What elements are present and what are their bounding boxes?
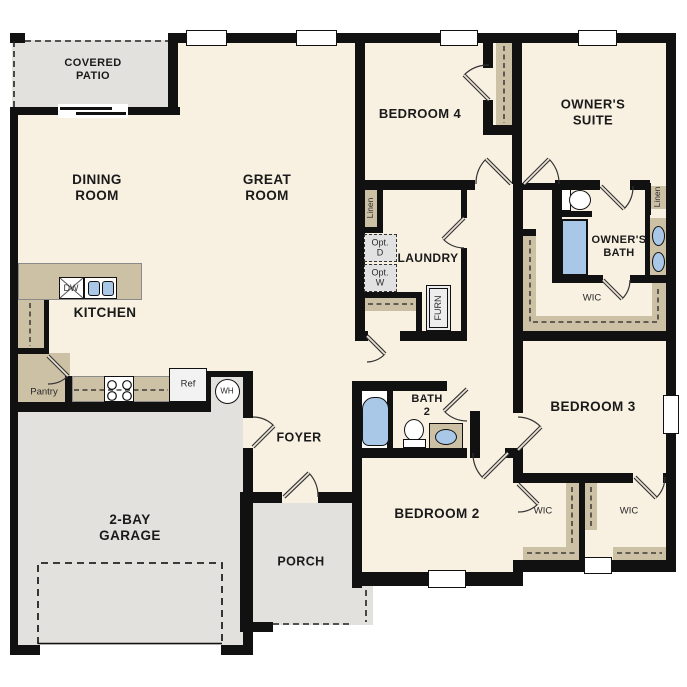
owners-wic-shelf-right — [652, 283, 666, 316]
wall — [10, 645, 40, 655]
room-label-garage: 2-BAY GARAGE — [99, 512, 161, 544]
wic3-shelf-bottom — [613, 547, 666, 560]
window — [428, 570, 466, 588]
wall — [483, 43, 493, 68]
label-line: SUITE — [561, 112, 625, 128]
room-label-laundry: LAUNDRY — [397, 251, 458, 265]
wall — [663, 473, 676, 483]
window — [663, 395, 679, 434]
window — [440, 30, 478, 46]
wic2-shelf-bottom — [523, 547, 579, 560]
wall — [10, 107, 18, 655]
wall — [243, 371, 253, 418]
vanity-sink — [652, 226, 665, 246]
wall — [513, 331, 676, 341]
appliance-label-opt-washer: Opt. W — [371, 268, 388, 289]
room-label-kitchen: KITCHEN — [74, 305, 137, 321]
wall — [513, 183, 557, 190]
wall — [205, 371, 247, 377]
wall — [461, 190, 467, 218]
wall — [168, 41, 178, 111]
appliance-label-furn: FURN — [433, 296, 443, 321]
wall — [44, 300, 49, 354]
wall — [558, 211, 592, 217]
wall — [400, 331, 422, 341]
wall — [355, 331, 368, 341]
room-label-covered-patio: COVERED PATIO — [64, 57, 121, 83]
label-line: DINING — [72, 172, 122, 188]
label-line: OWNER'S — [561, 96, 625, 112]
wall — [355, 292, 422, 298]
label-line: BATH — [592, 247, 647, 260]
wall — [579, 483, 585, 560]
wall — [523, 229, 536, 236]
wall — [630, 275, 668, 283]
label-line: W — [371, 278, 388, 288]
room-label-great: GREAT ROOM — [243, 172, 291, 204]
wall — [377, 185, 383, 233]
wall — [505, 448, 523, 458]
closet-label-wic-owner: WIC — [583, 294, 601, 305]
owners-toilet-bowl — [569, 190, 591, 210]
owners-wic-shelf-bottom — [536, 316, 666, 331]
room-label-porch: PORCH — [277, 555, 324, 570]
owners-shower — [561, 219, 588, 276]
wall — [355, 180, 475, 190]
wall — [240, 492, 250, 632]
appliance-label-opt-dryer: Opt. D — [371, 238, 388, 259]
room-label-bedroom2: BEDROOM 2 — [394, 506, 479, 522]
wall — [318, 492, 360, 503]
window — [296, 30, 337, 46]
bathtub — [362, 397, 389, 446]
wall — [461, 248, 467, 341]
closet-label-pantry: Pantry — [30, 388, 57, 399]
label-line: GARAGE — [99, 528, 161, 544]
room-label-dining: DINING ROOM — [72, 172, 122, 204]
window — [584, 557, 612, 574]
appliance-label-dw: DW — [64, 283, 79, 293]
wall — [352, 381, 362, 588]
wall — [470, 411, 480, 458]
label-line: Opt. — [371, 238, 388, 248]
wall — [483, 125, 516, 135]
room-label-foyer: FOYER — [276, 431, 321, 446]
wall — [552, 275, 603, 283]
label-line: PATIO — [64, 70, 121, 83]
room-label-bedroom4: BEDROOM 4 — [379, 106, 461, 122]
closet-label-linen-hall: Linen — [366, 198, 376, 219]
stove — [104, 376, 134, 402]
wall — [243, 492, 282, 503]
window — [578, 30, 617, 46]
sink-basin — [88, 281, 100, 296]
wall — [10, 402, 211, 412]
sink-basin — [102, 281, 114, 296]
wall — [512, 43, 522, 184]
room-label-bedroom3: BEDROOM 3 — [550, 399, 635, 415]
sliding-door-panel — [76, 112, 126, 115]
label-line: GREAT — [243, 172, 291, 188]
label-line: OWNER'S — [592, 234, 647, 247]
floor-plan: COVERED PATIO DINING ROOM GREAT ROOM KIT… — [0, 0, 687, 687]
pantry-shelf-strip — [18, 300, 44, 348]
label-line: 2 — [411, 406, 442, 419]
coat-closet-shelf — [365, 298, 416, 311]
label-line: 2-BAY — [99, 512, 161, 528]
toilet-bowl — [404, 419, 424, 441]
owners-wic-shelf-left — [523, 236, 536, 331]
toilet-tank — [403, 439, 426, 448]
room-label-owners-suite: OWNER'S SUITE — [561, 96, 625, 127]
label-line: BATH — [411, 393, 442, 406]
wall — [666, 33, 676, 572]
appliance-label-ref: Ref — [181, 380, 196, 391]
label-line: ROOM — [72, 188, 122, 204]
wall — [352, 448, 467, 458]
wall — [513, 190, 523, 413]
sliding-door-panel — [60, 107, 112, 110]
wall — [630, 180, 650, 190]
label-line: Opt. — [371, 268, 388, 278]
bath2-sink — [435, 429, 457, 445]
porch-area-ext — [360, 586, 373, 625]
closet-label-wic-bed2: WIC — [534, 507, 552, 518]
appliance-label-wh: WH — [220, 386, 233, 395]
wall — [352, 381, 447, 391]
wall — [18, 348, 49, 354]
wall — [240, 622, 273, 632]
wic3-shelf-left — [585, 483, 597, 530]
label-line: ROOM — [243, 188, 291, 204]
bedroom4-closet-shelf — [496, 43, 513, 125]
vanity-sink — [652, 252, 665, 272]
wall — [513, 473, 633, 483]
window — [186, 30, 227, 46]
wall — [422, 331, 467, 341]
closet-label-wic-bed3: WIC — [620, 507, 638, 518]
wall — [360, 227, 383, 233]
label-line: D — [371, 248, 388, 258]
closet-label-linen-owner: Linen — [653, 187, 663, 208]
room-label-owners-bath: OWNER'S BATH — [592, 234, 647, 260]
wall — [10, 33, 25, 43]
room-label-bath2: BATH 2 — [411, 393, 442, 419]
label-line: COVERED — [64, 57, 121, 70]
wall — [65, 376, 72, 403]
